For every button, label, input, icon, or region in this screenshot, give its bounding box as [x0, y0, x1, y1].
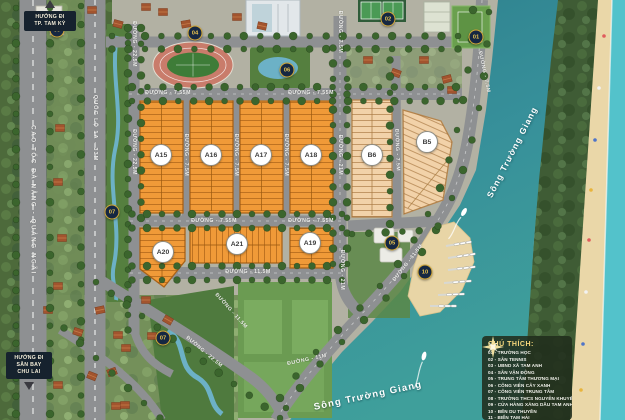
tree-icon	[249, 263, 255, 269]
tree-icon	[323, 224, 331, 232]
tree-icon	[47, 111, 53, 117]
tree-icon	[12, 410, 20, 418]
tree-icon	[47, 128, 54, 135]
tree-icon	[313, 349, 319, 355]
tree-icon	[339, 339, 345, 345]
tree-icon	[264, 277, 271, 284]
direction-line: SÂN BAY	[8, 362, 50, 369]
tree-icon	[233, 276, 241, 284]
tree-icon	[124, 69, 132, 77]
tree-icon	[438, 32, 446, 40]
tree-icon	[343, 59, 351, 67]
tree-icon	[77, 206, 85, 214]
tree-icon	[399, 229, 405, 235]
tree-icon	[240, 32, 248, 40]
tree-icon	[138, 56, 145, 63]
tree-icon	[418, 248, 426, 256]
tree-icon	[159, 263, 165, 269]
tree-icon	[204, 225, 210, 231]
tree-icon	[267, 83, 275, 91]
tree-icon	[46, 39, 54, 47]
tree-icon	[174, 83, 182, 91]
tree-icon	[124, 115, 132, 123]
tree-icon	[390, 97, 398, 105]
tree-icon	[141, 400, 147, 406]
tree-icon	[386, 72, 394, 80]
tree-icon	[46, 145, 54, 153]
tree-icon	[322, 45, 330, 53]
tree-icon	[175, 98, 181, 104]
tree-icon	[278, 262, 286, 270]
tree-icon	[13, 393, 20, 400]
tree-icon	[289, 32, 297, 40]
tree-icon	[76, 339, 84, 347]
tree-icon	[290, 46, 296, 52]
tree-icon	[376, 84, 382, 90]
tree-icon	[78, 281, 84, 287]
tree-icon	[329, 98, 336, 105]
tree-icon	[222, 98, 228, 104]
tree-icon	[129, 211, 136, 218]
tree-icon	[484, 41, 491, 48]
tree-icon	[343, 106, 351, 114]
tree-icon	[154, 324, 161, 331]
tree-icon	[12, 92, 20, 100]
park-pond	[258, 57, 298, 79]
tree-icon	[486, 9, 492, 15]
tree-icon	[174, 33, 181, 40]
tree-icon	[185, 347, 191, 353]
tree-icon	[13, 340, 20, 347]
umbrella-icon	[579, 388, 583, 392]
tree-icon	[360, 98, 366, 104]
house-icon	[142, 4, 151, 11]
tree-icon	[401, 273, 407, 279]
tree-icon	[251, 97, 259, 105]
tree-icon	[344, 137, 351, 144]
tree-icon	[174, 225, 181, 232]
tree-icon	[47, 393, 54, 400]
tree-icon	[252, 84, 259, 91]
tree-icon	[233, 224, 241, 232]
direction-line: CHU LAI	[8, 369, 50, 376]
tree-icon	[174, 45, 182, 53]
tree-icon	[78, 3, 84, 9]
tree-icon	[344, 261, 350, 267]
docked-boat-icon	[463, 266, 469, 269]
house-icon	[148, 333, 157, 340]
tree-icon	[47, 58, 53, 64]
lawn	[292, 300, 328, 354]
tree-icon	[465, 67, 472, 74]
tree-icon	[437, 97, 445, 105]
tree-icon	[125, 327, 132, 334]
house-icon	[58, 235, 67, 242]
arrow-down-icon	[24, 382, 34, 390]
tree-icon	[387, 139, 393, 145]
tree-icon	[125, 191, 132, 198]
tree-icon	[128, 83, 136, 91]
tree-icon	[264, 225, 271, 232]
tree-icon	[223, 45, 231, 53]
tree-icon	[344, 45, 351, 52]
tree-icon	[273, 33, 280, 40]
tree-icon	[330, 91, 337, 98]
house-icon	[54, 179, 63, 186]
tree-icon	[273, 45, 281, 53]
tree-icon	[344, 215, 350, 221]
tree-icon	[12, 145, 20, 153]
tree-icon	[124, 251, 132, 259]
tree-icon	[330, 84, 336, 90]
tree-icon	[330, 230, 337, 237]
tree-icon	[191, 46, 197, 52]
house-icon	[88, 7, 97, 14]
tree-icon	[387, 106, 394, 113]
tree-icon	[425, 211, 431, 217]
tree-icon	[387, 90, 393, 96]
tree-icon	[47, 287, 54, 294]
tree-icon	[439, 46, 445, 52]
tree-icon	[12, 251, 20, 259]
tree-icon	[143, 224, 151, 232]
direction-line: HƯỚNG ĐI	[26, 14, 74, 21]
legend-items: 01 - TRƯỜNG HỌC02 - SÂN TENNIS03 - UBND …	[488, 350, 567, 420]
tree-icon	[357, 305, 364, 312]
tree-icon	[77, 373, 85, 381]
tree-icon	[208, 33, 214, 39]
tree-icon	[334, 326, 342, 334]
tree-icon	[365, 230, 372, 237]
tree-icon	[13, 287, 20, 294]
direction-badge-tam-ky: HƯỚNG ĐI TP. TAM KỲ	[24, 11, 76, 31]
tree-icon	[349, 231, 355, 237]
tree-icon	[406, 33, 412, 39]
tree-icon	[78, 411, 85, 418]
tree-icon	[78, 355, 85, 362]
tree-icon	[383, 295, 390, 302]
tree-icon	[468, 37, 474, 43]
tree-icon	[174, 211, 181, 218]
tree-icon	[207, 46, 214, 53]
tree-icon	[219, 225, 226, 232]
docked-boat-icon	[453, 281, 459, 284]
tree-icon	[125, 33, 132, 40]
civic-building	[246, 0, 300, 36]
tree-icon	[330, 215, 336, 221]
tree-icon	[382, 228, 390, 236]
tree-icon	[372, 33, 379, 40]
tree-icon	[159, 84, 166, 91]
tree-icon	[191, 84, 197, 90]
tree-icon	[422, 98, 429, 105]
tree-icon	[188, 210, 196, 218]
tree-icon	[78, 188, 85, 195]
tree-icon	[46, 410, 54, 418]
tree-icon	[78, 114, 84, 120]
tree-icon	[200, 358, 207, 365]
tree-icon	[359, 83, 367, 91]
tree-icon	[138, 41, 144, 47]
tree-icon	[330, 261, 336, 267]
tree-icon	[387, 188, 393, 194]
tree-icon	[313, 83, 321, 91]
tree-icon	[129, 98, 135, 104]
tree-icon	[144, 98, 151, 105]
tree-icon	[309, 211, 316, 218]
tree-icon	[78, 393, 84, 399]
tree-icon	[314, 98, 320, 104]
tree-icon	[437, 84, 444, 91]
tree-icon	[278, 224, 286, 232]
tree-icon	[407, 98, 413, 104]
tree-icon	[174, 263, 181, 270]
tree-icon	[372, 45, 380, 53]
docked-boat-icon	[451, 305, 457, 307]
direction-line: HƯỚNG ĐI	[8, 355, 50, 362]
tree-icon	[388, 32, 396, 40]
tree-icon	[309, 225, 316, 232]
tree-icon	[233, 210, 241, 218]
tree-icon	[422, 33, 429, 40]
tree-icon	[109, 370, 116, 377]
docked-boat-icon	[459, 280, 465, 283]
house-icon	[114, 332, 123, 339]
tree-icon	[190, 32, 198, 40]
tree-icon	[158, 46, 165, 53]
tree-icon	[205, 97, 213, 105]
master-plan-map: CAO TỐC ĐÀ NẴNG - QUẢNG NGÃIQUỐC LỘ 1A -…	[0, 0, 625, 420]
tree-icon	[206, 84, 213, 91]
legend-item-11: 11 - BIỂN TAM HẢI	[488, 415, 567, 420]
tree-icon	[278, 276, 286, 284]
tree-icon	[293, 373, 300, 380]
house-icon	[364, 57, 373, 64]
tree-icon	[188, 276, 196, 284]
tree-icon	[46, 198, 54, 206]
tree-icon	[47, 164, 53, 170]
tree-icon	[12, 198, 20, 206]
tree-icon	[204, 263, 210, 269]
tree-icon	[344, 76, 350, 82]
tree-icon	[296, 384, 304, 392]
direction-line: TP. TAM KỲ	[26, 21, 74, 28]
tree-icon	[221, 83, 229, 91]
tree-icon	[215, 369, 223, 377]
tree-icon	[356, 46, 363, 53]
tree-icon	[138, 199, 145, 206]
tree-icon	[125, 145, 132, 152]
tree-icon	[469, 137, 476, 144]
tree-icon	[469, 6, 477, 14]
tree-icon	[329, 245, 337, 253]
tree-icon	[125, 45, 133, 53]
tree-icon	[283, 405, 289, 411]
tree-icon	[78, 77, 85, 84]
tree-icon	[257, 46, 264, 53]
tree-icon	[237, 84, 243, 90]
tree-icon	[13, 75, 20, 82]
tree-icon	[231, 381, 237, 387]
umbrella-icon	[593, 138, 597, 142]
tree-icon	[294, 211, 300, 217]
tree-icon	[294, 277, 300, 283]
tree-icon	[345, 84, 352, 91]
tree-icon	[142, 46, 148, 52]
tree-icon	[125, 131, 131, 137]
tree-icon	[204, 211, 210, 217]
tree-icon	[249, 225, 255, 231]
tree-icon	[129, 263, 136, 270]
tree-icon	[249, 277, 255, 283]
tree-icon	[138, 88, 144, 94]
tree-icon	[174, 277, 181, 284]
house-icon	[54, 283, 63, 290]
tree-icon	[317, 361, 324, 368]
tree-icon	[476, 105, 482, 111]
tree-icon	[389, 46, 395, 52]
tree-icon	[394, 260, 402, 268]
tree-icon	[13, 217, 19, 223]
tree-icon	[138, 151, 145, 158]
tree-icon	[13, 234, 20, 241]
tree-icon	[190, 98, 197, 105]
tree-icon	[138, 183, 144, 189]
tree-icon	[377, 283, 383, 289]
tree-icon	[47, 75, 54, 82]
tree-icon	[339, 277, 345, 283]
docked-boat-icon	[466, 280, 472, 283]
tree-icon	[480, 72, 488, 80]
tree-icon	[159, 97, 167, 105]
tree-icon	[459, 96, 467, 104]
tree-icon	[13, 181, 20, 188]
tree-icon	[411, 237, 418, 244]
tree-icon	[298, 97, 306, 105]
tree-icon	[387, 204, 394, 211]
tree-icon	[137, 119, 145, 127]
tree-icon	[344, 122, 350, 128]
tree-icon	[375, 98, 382, 105]
umbrella-icon	[602, 34, 606, 38]
house-icon	[112, 403, 121, 410]
tree-icon	[47, 340, 54, 347]
house-icon	[54, 382, 63, 389]
tree-icon	[329, 106, 337, 114]
tree-icon	[330, 122, 336, 128]
tree-icon	[309, 263, 316, 270]
compass-icon	[482, 336, 504, 358]
tree-icon	[144, 84, 150, 90]
tree-icon	[298, 84, 305, 91]
tree-icon	[344, 97, 352, 105]
tree-icon	[138, 136, 144, 142]
tree-icon	[46, 251, 54, 259]
tree-icon	[323, 33, 330, 40]
tree-icon	[78, 299, 85, 306]
tree-icon	[157, 415, 164, 420]
tree-icon	[169, 335, 177, 343]
tree-icon	[78, 59, 84, 65]
tree-icon	[137, 24, 145, 32]
docked-boat-icon	[470, 266, 476, 269]
legend-item-05: 05 - TRUNG TÂM THƯƠNG MẠI	[488, 376, 567, 383]
tree-icon	[344, 91, 351, 98]
tree-icon	[47, 270, 53, 276]
tree-icon	[77, 150, 85, 158]
tennis-courts	[358, 0, 406, 22]
tree-icon	[78, 244, 85, 251]
tree-icon	[93, 279, 99, 285]
house-icon	[159, 9, 168, 16]
house-icon	[233, 14, 242, 21]
umbrella-icon	[597, 86, 601, 90]
tree-icon	[330, 76, 336, 82]
tree-icon	[188, 224, 196, 232]
tree-icon	[109, 46, 116, 53]
tree-icon	[356, 33, 362, 39]
tree-icon	[13, 128, 20, 135]
house-icon	[121, 402, 130, 409]
tree-icon	[406, 83, 414, 91]
docked-boat-icon	[446, 293, 452, 295]
house-icon	[420, 57, 429, 64]
tree-icon	[277, 415, 283, 420]
umbrella-icon	[584, 290, 588, 294]
tree-icon	[416, 227, 423, 234]
tree-icon	[137, 167, 145, 175]
tree-icon	[129, 225, 136, 232]
tree-icon	[387, 155, 394, 162]
tree-icon	[224, 33, 231, 40]
tree-icon	[330, 183, 337, 190]
tree-icon	[449, 195, 455, 201]
tree-icon	[309, 277, 316, 284]
tree-icon	[137, 72, 145, 80]
tree-icon	[278, 210, 286, 218]
tree-icon	[13, 270, 19, 276]
house-icon	[257, 22, 267, 31]
tree-icon	[264, 211, 271, 218]
tree-icon	[405, 46, 412, 53]
tree-icon	[436, 184, 444, 192]
tree-icon	[330, 168, 336, 174]
tree-icon	[455, 33, 461, 39]
tree-icon	[77, 317, 85, 325]
tree-icon	[339, 225, 345, 231]
tree-icon	[283, 84, 289, 90]
tree-icon	[294, 225, 300, 231]
tree-icon	[123, 301, 131, 309]
legend-panel: CHÚ THÍCH: 01 - TRƯỜNG HỌC02 - SÂN TENNI…	[482, 336, 572, 420]
tree-icon	[13, 164, 19, 170]
tree-icon	[125, 55, 132, 62]
tree-icon	[143, 276, 151, 284]
tree-icon	[283, 98, 290, 105]
tree-icon	[261, 403, 269, 411]
tree-icon	[386, 220, 394, 228]
tree-icon	[249, 211, 255, 217]
house-icon	[181, 20, 191, 28]
tree-icon	[78, 21, 85, 28]
tree-icon	[109, 33, 115, 39]
umbrella-icon	[587, 238, 591, 242]
tree-icon	[219, 263, 226, 270]
arrow-up-icon	[45, 0, 55, 8]
tree-icon	[13, 111, 19, 117]
tree-icon	[422, 84, 428, 90]
tree-icon	[219, 211, 226, 218]
